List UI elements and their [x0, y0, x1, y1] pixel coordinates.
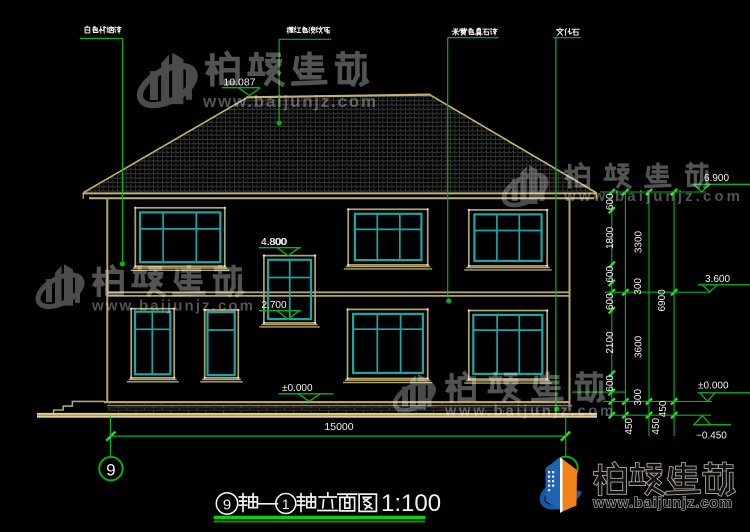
svg-text:±0.000: ±0.000	[282, 383, 313, 394]
svg-text:600: 600	[605, 293, 616, 310]
svg-text:1:100: 1:100	[381, 490, 441, 517]
svg-text:3600: 3600	[634, 335, 645, 358]
svg-text:450: 450	[658, 400, 669, 417]
svg-text:www.baijunjz.com: www.baijunjz.com	[592, 496, 732, 512]
svg-text:1: 1	[282, 496, 290, 512]
svg-text:3300: 3300	[634, 230, 645, 253]
svg-text:2.700: 2.700	[262, 300, 287, 311]
svg-text:−0.450: −0.450	[696, 430, 727, 441]
svg-text:2100: 2100	[605, 331, 616, 354]
svg-text:300: 300	[633, 389, 644, 406]
svg-text:1800: 1800	[605, 226, 616, 249]
svg-text:450: 450	[624, 418, 635, 435]
svg-text:15000: 15000	[324, 421, 353, 433]
svg-text:±0.000: ±0.000	[698, 381, 729, 392]
svg-text:9: 9	[106, 461, 115, 480]
svg-text:6900: 6900	[657, 289, 668, 312]
svg-text:3.600: 3.600	[705, 274, 730, 285]
svg-text:9: 9	[223, 497, 231, 514]
svg-text:300: 300	[633, 278, 644, 295]
svg-text:600: 600	[605, 375, 616, 392]
svg-text:450: 450	[651, 418, 662, 435]
svg-text:4.800: 4.800	[261, 237, 286, 248]
svg-text:600: 600	[605, 266, 616, 283]
